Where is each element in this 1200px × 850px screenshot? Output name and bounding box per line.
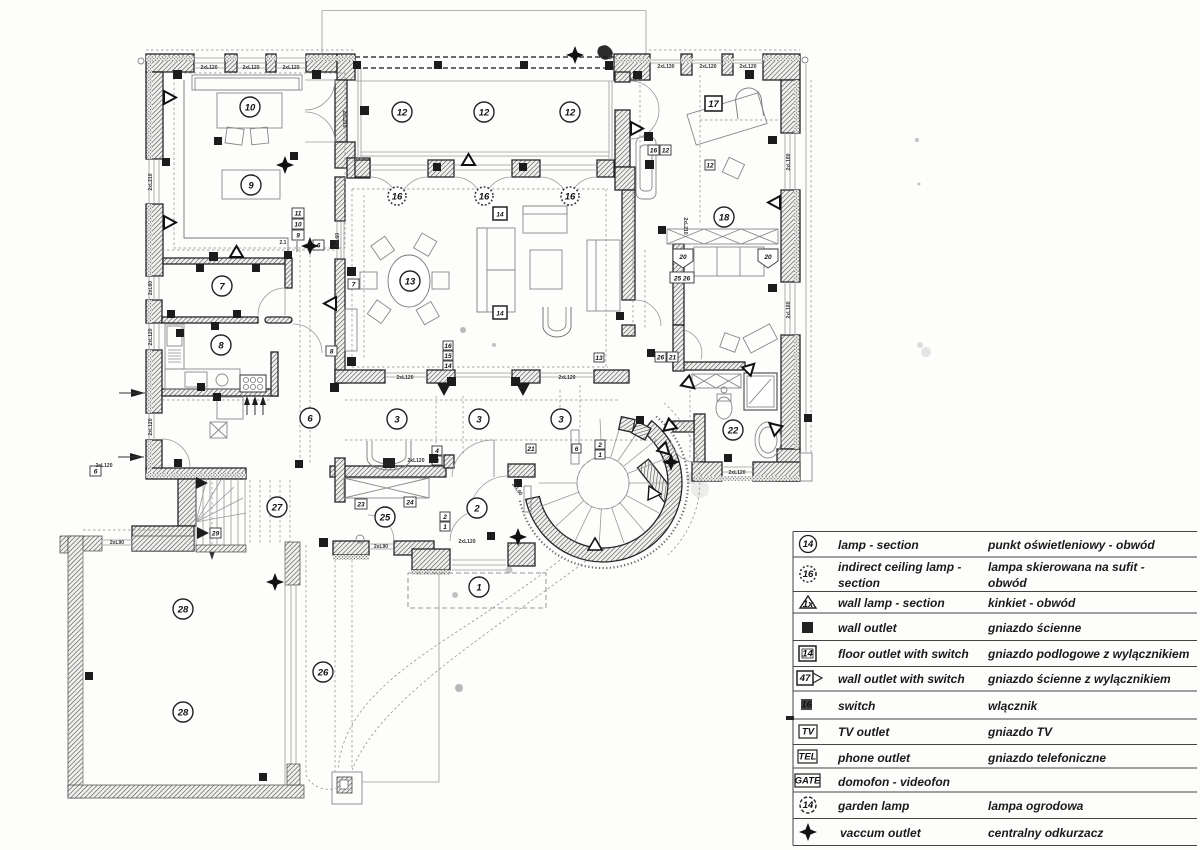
svg-text:6: 6 xyxy=(575,446,579,453)
svg-text:11: 11 xyxy=(295,211,302,218)
svg-text:wall outlet: wall outlet xyxy=(838,621,898,635)
svg-text:2xL90: 2xL90 xyxy=(374,544,388,550)
svg-text:2xL120: 2xL120 xyxy=(96,463,113,469)
svg-text:wall lamp - section: wall lamp - section xyxy=(838,596,945,610)
svg-text:domofon - videofon: domofon - videofon xyxy=(838,775,950,789)
svg-text:2xL210: 2xL210 xyxy=(148,173,154,190)
svg-text:26: 26 xyxy=(656,355,665,362)
svg-text:21: 21 xyxy=(526,446,535,453)
svg-text:2xL180: 2xL180 xyxy=(786,301,792,318)
svg-text:2xL120: 2xL120 xyxy=(148,328,154,345)
svg-text:14: 14 xyxy=(803,539,814,550)
svg-text:16: 16 xyxy=(565,192,576,203)
svg-text:2: 2 xyxy=(473,504,480,515)
svg-text:13: 13 xyxy=(595,355,603,362)
svg-text:gniazdo podlogowe z wylączniki: gniazdo podlogowe z wylącznikiem xyxy=(987,647,1190,661)
svg-text:TV outlet: TV outlet xyxy=(838,725,890,739)
svg-text:1x: 1x xyxy=(803,599,814,610)
svg-text:47: 47 xyxy=(799,673,811,684)
svg-text:2xL120: 2xL120 xyxy=(559,375,576,381)
svg-text:wlącznik: wlącznik xyxy=(988,699,1039,713)
svg-text:18: 18 xyxy=(719,213,730,224)
svg-text:punkt oświetleniowy - obwód: punkt oświetleniowy - obwód xyxy=(987,538,1155,552)
svg-text:20: 20 xyxy=(763,254,772,261)
svg-text:2xL120: 2xL120 xyxy=(201,65,218,71)
svg-text:2xL120: 2xL120 xyxy=(729,470,746,476)
svg-text:12: 12 xyxy=(565,108,576,119)
svg-text:2xL120: 2xL120 xyxy=(148,418,154,435)
svg-text:4: 4 xyxy=(434,448,439,455)
svg-text:3: 3 xyxy=(394,415,400,426)
svg-text:6: 6 xyxy=(94,469,98,476)
svg-text:2xL120: 2xL120 xyxy=(700,64,717,70)
svg-text:12: 12 xyxy=(479,108,490,119)
svg-text:GATE: GATE xyxy=(795,776,821,787)
svg-text:gniazdo telefoniczne: gniazdo telefoniczne xyxy=(987,751,1106,765)
svg-text:7: 7 xyxy=(219,282,225,293)
svg-text:28: 28 xyxy=(177,708,189,719)
svg-text:1: 1 xyxy=(476,583,481,594)
svg-text:16: 16 xyxy=(479,192,490,203)
svg-text:13: 13 xyxy=(405,277,416,288)
svg-text:2.1: 2.1 xyxy=(280,240,287,246)
svg-text:2xL120: 2xL120 xyxy=(740,64,757,70)
svg-text:section: section xyxy=(838,576,880,590)
svg-text:TEL: TEL xyxy=(799,752,817,763)
svg-text:12: 12 xyxy=(706,163,714,170)
svg-text:16: 16 xyxy=(803,569,814,580)
svg-text:6xL60: 6xL60 xyxy=(335,233,341,247)
svg-text:25 26: 25 26 xyxy=(673,276,691,283)
svg-text:vaccum outlet: vaccum outlet xyxy=(840,826,922,840)
svg-text:kinkiet - obwód: kinkiet - obwód xyxy=(988,596,1076,610)
svg-text:12: 12 xyxy=(662,148,670,155)
svg-text:14: 14 xyxy=(803,800,814,811)
svg-text:14: 14 xyxy=(496,311,504,318)
svg-text:gniazdo ścienne: gniazdo ścienne xyxy=(987,621,1082,635)
svg-text:14: 14 xyxy=(496,212,504,219)
svg-text:12: 12 xyxy=(397,108,408,119)
svg-text:28: 28 xyxy=(177,605,189,616)
svg-text:2xL210: 2xL210 xyxy=(341,111,347,128)
svg-text:centralny odkurzacz: centralny odkurzacz xyxy=(988,826,1103,840)
svg-text:29: 29 xyxy=(211,531,220,538)
svg-text:6: 6 xyxy=(307,414,313,425)
svg-text:TV: TV xyxy=(802,727,815,738)
svg-text:16: 16 xyxy=(392,192,403,203)
svg-text:23: 23 xyxy=(356,502,365,509)
svg-text:obwód: obwód xyxy=(988,576,1027,590)
svg-text:27: 27 xyxy=(271,503,283,514)
svg-text:2: 2 xyxy=(442,514,447,521)
svg-text:14: 14 xyxy=(444,363,452,370)
svg-text:2xL120: 2xL120 xyxy=(397,375,414,381)
svg-text:gniazdo TV: gniazdo TV xyxy=(987,725,1053,739)
svg-text:8: 8 xyxy=(218,341,224,352)
svg-text:2xL210: 2xL210 xyxy=(682,218,688,235)
svg-text:24: 24 xyxy=(405,500,414,507)
svg-text:16: 16 xyxy=(801,700,812,711)
svg-text:2xL60: 2xL60 xyxy=(148,281,154,295)
svg-text:1: 1 xyxy=(598,452,602,459)
svg-text:gniazdo ścienne z wylącznikiem: gniazdo ścienne z wylącznikiem xyxy=(987,672,1171,686)
svg-text:2xL180: 2xL180 xyxy=(786,153,792,170)
svg-text:3: 3 xyxy=(476,415,482,426)
svg-text:26: 26 xyxy=(317,668,329,679)
svg-text:10: 10 xyxy=(245,103,256,114)
svg-text:2xL120: 2xL120 xyxy=(408,458,425,464)
svg-text:3: 3 xyxy=(558,415,564,426)
svg-text:16: 16 xyxy=(650,148,658,155)
svg-text:9: 9 xyxy=(296,233,300,240)
svg-text:garden lamp: garden lamp xyxy=(837,799,909,813)
svg-text:wall outlet with switch: wall outlet with switch xyxy=(838,672,965,686)
svg-text:2xL90: 2xL90 xyxy=(110,540,124,546)
svg-text:25: 25 xyxy=(379,513,391,524)
svg-text:16: 16 xyxy=(444,343,452,350)
svg-text:2xL120: 2xL120 xyxy=(243,65,260,71)
svg-text:8: 8 xyxy=(330,349,334,356)
svg-text:17: 17 xyxy=(708,99,719,110)
svg-text:7: 7 xyxy=(352,282,356,289)
svg-text:2xL130: 2xL130 xyxy=(658,64,675,70)
svg-text:lamp - section: lamp - section xyxy=(838,538,919,552)
svg-text:9: 9 xyxy=(248,181,254,192)
svg-text:indirect ceiling lamp -: indirect ceiling lamp - xyxy=(838,560,961,574)
svg-text:1: 1 xyxy=(443,524,447,531)
svg-text:2xL120: 2xL120 xyxy=(283,65,300,71)
svg-text:22: 22 xyxy=(727,426,739,437)
svg-text:14: 14 xyxy=(802,649,813,660)
svg-text:21: 21 xyxy=(668,355,677,362)
svg-text:2xL120: 2xL120 xyxy=(459,539,476,545)
svg-text:phone outlet: phone outlet xyxy=(837,751,911,765)
svg-text:floor outlet with switch: floor outlet with switch xyxy=(838,647,969,661)
svg-text:10: 10 xyxy=(294,222,302,229)
svg-text:15: 15 xyxy=(444,353,452,360)
svg-text:20: 20 xyxy=(678,254,687,261)
svg-text:switch: switch xyxy=(838,699,875,713)
svg-text:lampa ogrodowa: lampa ogrodowa xyxy=(988,799,1084,813)
svg-text:lampa skierowana na sufit -: lampa skierowana na sufit - xyxy=(988,560,1145,574)
svg-text:2: 2 xyxy=(597,442,602,449)
